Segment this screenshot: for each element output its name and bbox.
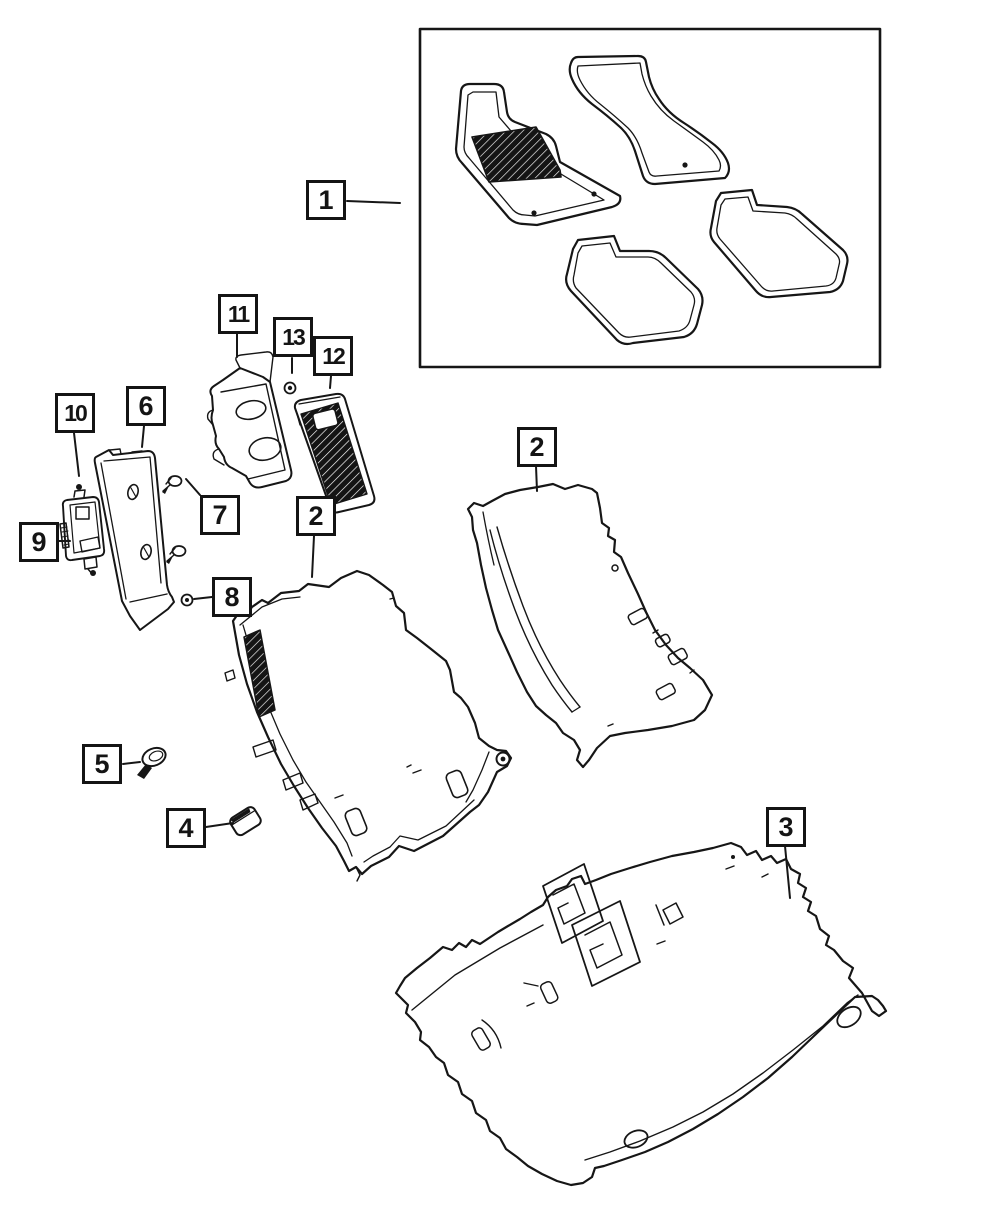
callout-6[interactable]: 6: [126, 386, 166, 426]
leader-5: [123, 762, 140, 764]
leader-8: [194, 597, 212, 599]
callout-5[interactable]: 5: [82, 744, 122, 784]
front-left-floor-mat: [456, 84, 620, 225]
module-bracket: [60, 484, 104, 576]
leader-lines: [59, 201, 790, 898]
front-right-floor-mat: [570, 56, 729, 184]
leader-10: [74, 433, 79, 476]
grommet-fastener: [285, 383, 296, 394]
front-carpet-right: [468, 484, 712, 767]
rear-carpet: [396, 843, 886, 1185]
callout-11[interactable]: 11: [218, 294, 258, 334]
parts-diagram-canvas: [0, 0, 1000, 1214]
leader-6: [142, 426, 144, 447]
push-pin-retainer: [137, 745, 168, 779]
rear-right-floor-mat: [710, 190, 847, 297]
leader-12: [330, 376, 331, 388]
carpet-footrest-pad: [244, 630, 275, 717]
front-carpet-left: [225, 571, 511, 881]
callout-10[interactable]: 10: [55, 393, 95, 433]
console-bracket: [208, 352, 292, 488]
callout-13[interactable]: 13: [273, 317, 313, 357]
leader-3: [785, 846, 790, 898]
screw-fasteners: [162, 476, 186, 564]
callout-3[interactable]: 3: [766, 807, 806, 847]
clip-dot-upper: [76, 484, 82, 490]
leader-7: [186, 479, 200, 495]
callout-12[interactable]: 12: [313, 336, 353, 376]
callout-7[interactable]: 7: [200, 495, 240, 535]
callout-9[interactable]: 9: [19, 522, 59, 562]
clip-dot-lower: [90, 570, 96, 576]
retainer-clip: [228, 805, 262, 837]
leader-2-left: [312, 536, 314, 577]
leader-4: [206, 823, 233, 827]
callout-2-left[interactable]: 2: [296, 496, 336, 536]
page-background: 1 2 2 3 4 5 6 7 8 9 10 11 12 13: [0, 0, 1000, 1214]
leader-1: [347, 201, 400, 203]
footrest-panel: [295, 394, 375, 513]
closeout-panel: [95, 449, 174, 630]
push-fastener: [182, 595, 193, 606]
callout-2-right[interactable]: 2: [517, 427, 557, 467]
callout-1[interactable]: 1: [306, 180, 346, 220]
leader-2-right: [536, 466, 537, 491]
callout-4[interactable]: 4: [166, 808, 206, 848]
rear-left-floor-mat: [566, 236, 702, 344]
callout-8[interactable]: 8: [212, 577, 252, 617]
